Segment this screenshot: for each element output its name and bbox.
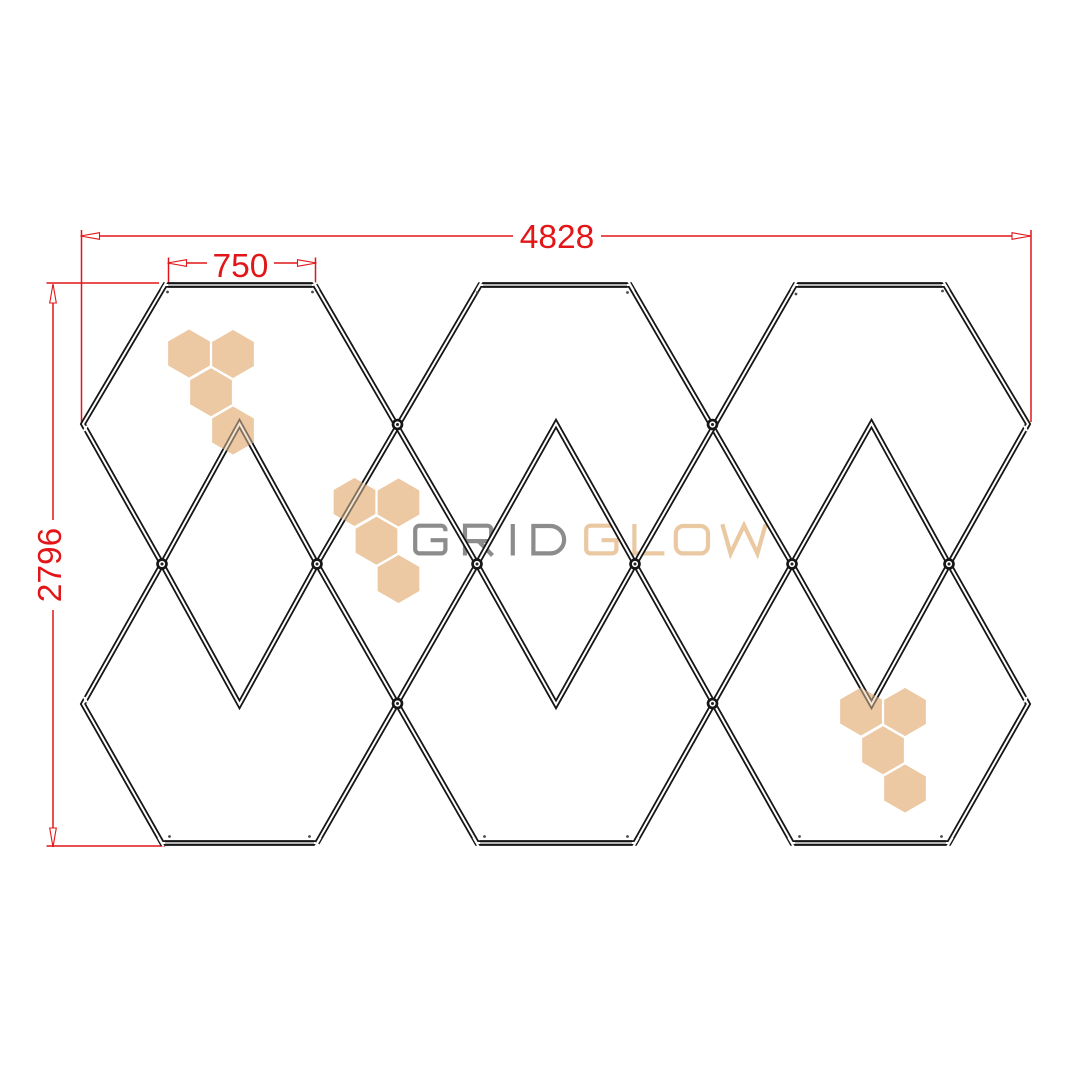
svg-text:2796: 2796: [32, 528, 69, 603]
svg-text:4828: 4828: [520, 219, 595, 256]
svg-text:750: 750: [213, 248, 269, 285]
